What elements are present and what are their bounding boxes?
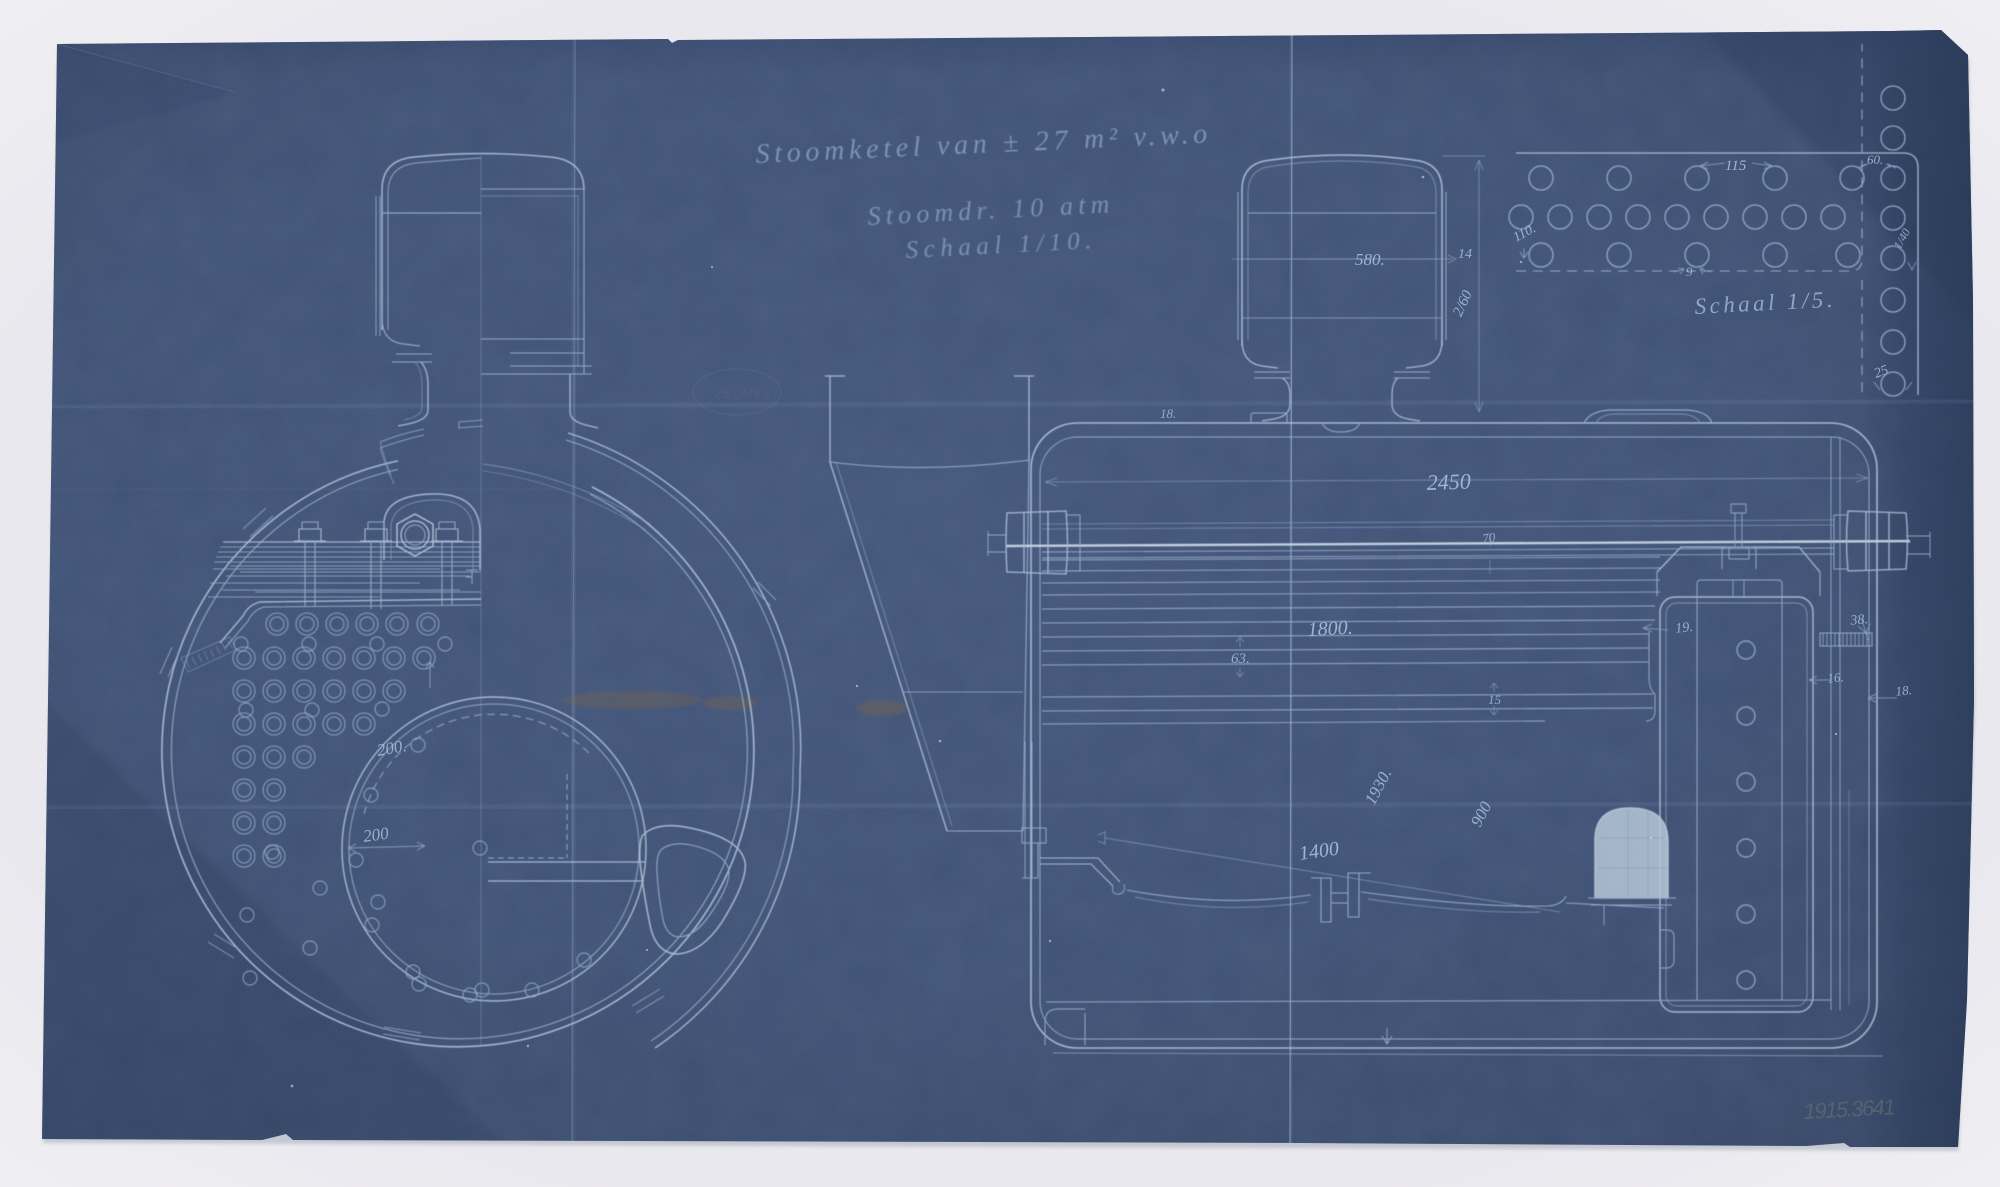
svg-text:38.: 38. xyxy=(1849,612,1869,629)
svg-text:14: 14 xyxy=(1458,247,1472,262)
svg-text:2450: 2450 xyxy=(1426,468,1471,495)
svg-text:60.: 60. xyxy=(1867,152,1883,167)
svg-text:18.: 18. xyxy=(1895,682,1913,699)
svg-text:1800.: 1800. xyxy=(1307,617,1353,641)
svg-text:18.: 18. xyxy=(1160,406,1176,421)
svg-text:63.: 63. xyxy=(1231,651,1250,667)
svg-text:9: 9 xyxy=(1686,264,1693,279)
svg-text:70: 70 xyxy=(1481,529,1496,546)
svg-text:15: 15 xyxy=(1488,692,1502,707)
svg-text:19.: 19. xyxy=(1675,620,1694,637)
svg-text:200: 200 xyxy=(362,824,390,846)
svg-text:580.: 580. xyxy=(1355,250,1385,269)
svg-text:1915.3641: 1915.3641 xyxy=(1803,1094,1896,1124)
svg-text:23 JAN 87: 23 JAN 87 xyxy=(714,385,780,401)
svg-text:16.: 16. xyxy=(1827,669,1845,686)
svg-text:115: 115 xyxy=(1725,158,1747,174)
